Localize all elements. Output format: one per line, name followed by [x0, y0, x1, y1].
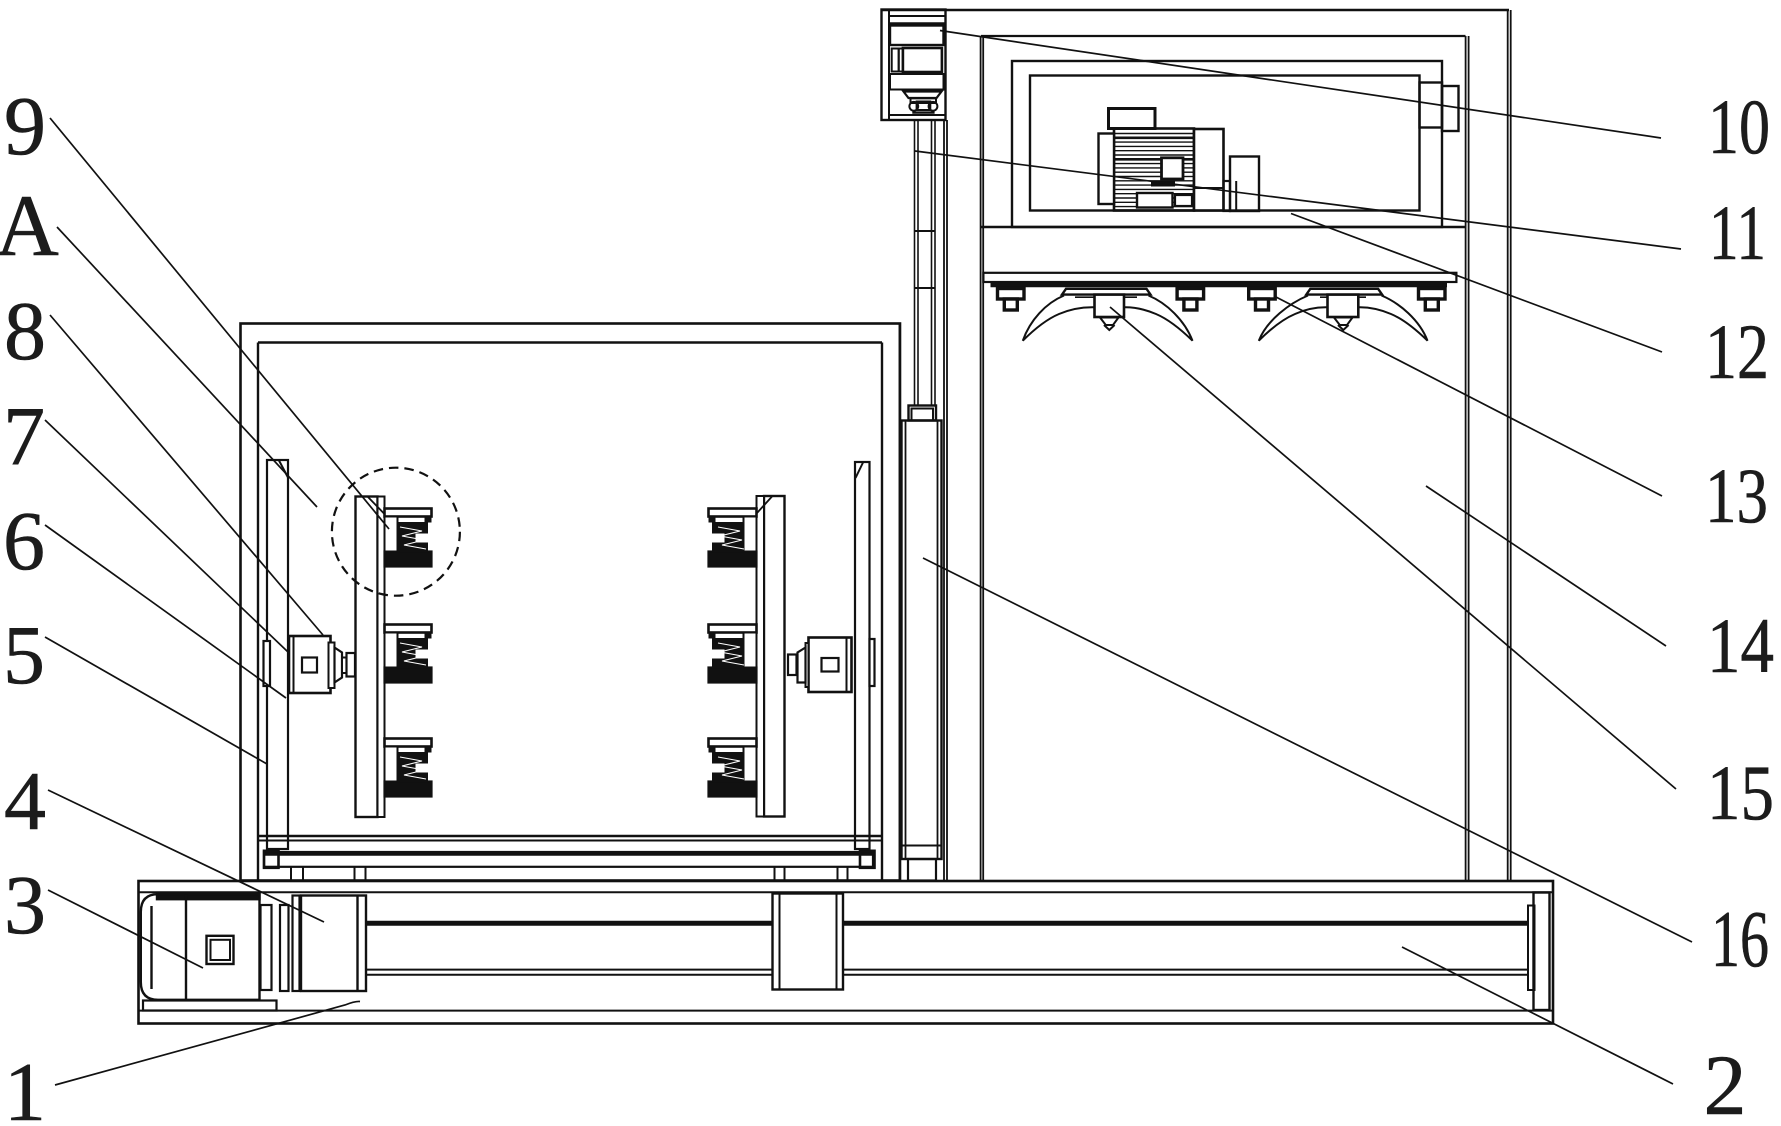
svg-text:6: 6: [3, 495, 45, 588]
svg-text:10: 10: [1708, 83, 1770, 170]
svg-text:2: 2: [1704, 1037, 1747, 1126]
svg-text:16: 16: [1711, 896, 1769, 984]
svg-text:15: 15: [1707, 749, 1774, 836]
svg-text:12: 12: [1705, 308, 1769, 395]
svg-text:4: 4: [4, 755, 46, 848]
svg-text:A: A: [0, 178, 59, 275]
svg-text:7: 7: [3, 390, 45, 483]
svg-text:8: 8: [4, 285, 46, 378]
svg-text:11: 11: [1709, 189, 1766, 276]
svg-text:1: 1: [4, 1046, 46, 1126]
svg-text:3: 3: [4, 859, 46, 952]
svg-text:14: 14: [1707, 602, 1774, 689]
svg-text:9: 9: [4, 80, 46, 173]
svg-text:13: 13: [1705, 452, 1768, 539]
svg-text:5: 5: [3, 609, 45, 702]
